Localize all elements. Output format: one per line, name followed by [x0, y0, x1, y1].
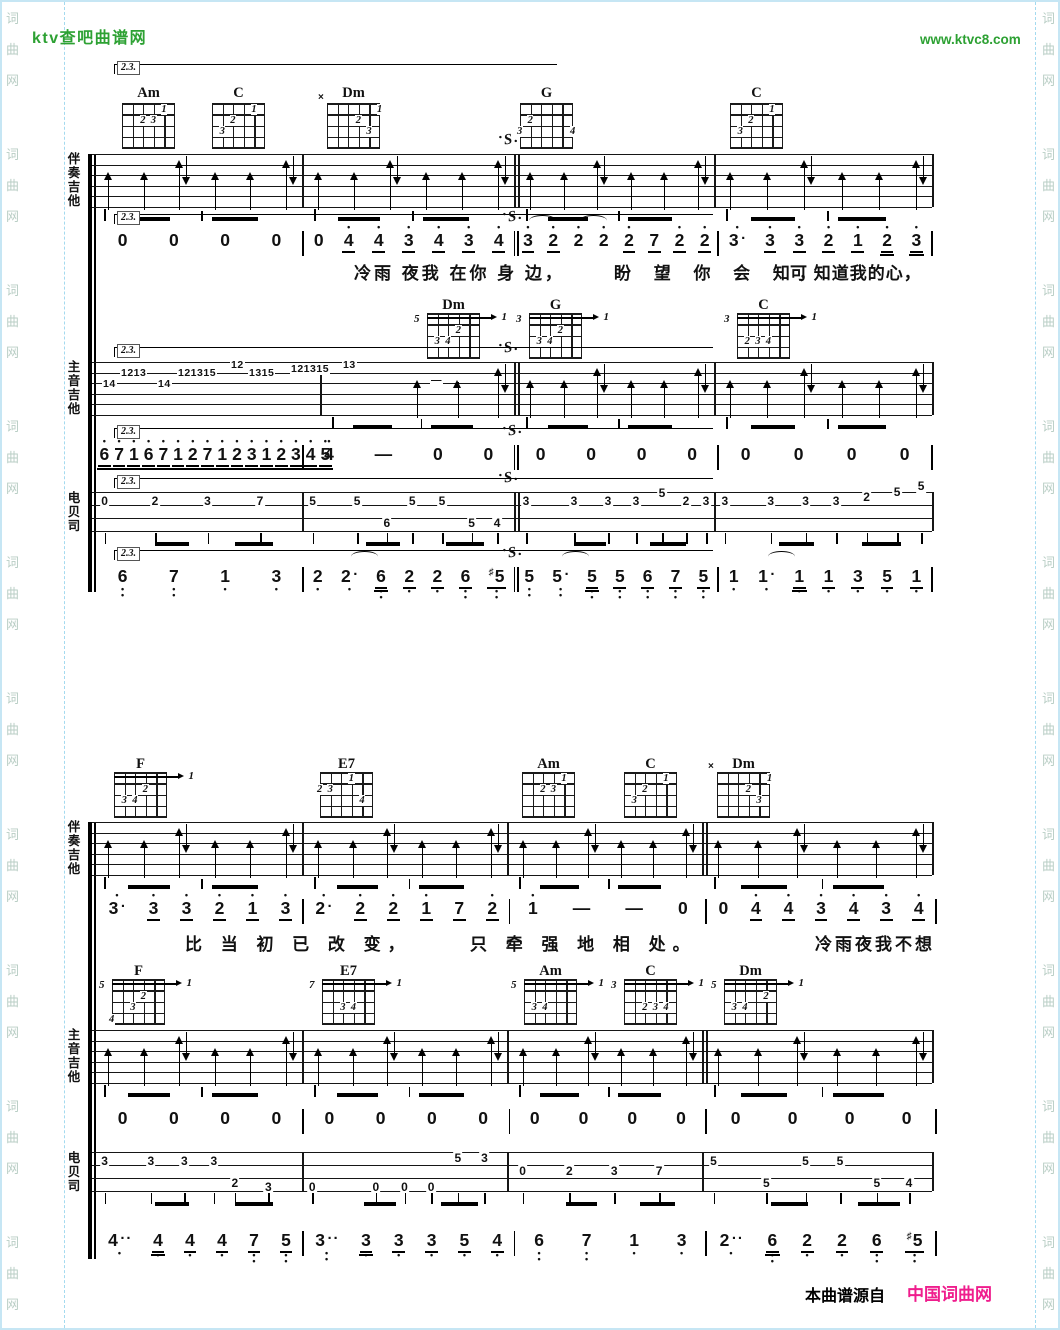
bass-tab-number: 3: [569, 494, 579, 508]
octave-dot-above: •: [107, 890, 127, 898]
octave-dot-above: [375, 558, 388, 566]
tab-number: 121315: [290, 363, 330, 375]
strum-down-arrow: [394, 1032, 395, 1059]
strum-up-arrow: [876, 1050, 877, 1086]
note-number: 0: [686, 444, 699, 465]
note-number: 2: [275, 444, 288, 467]
arrowhead: [494, 160, 502, 168]
watermark-char: 曲: [6, 311, 19, 330]
jianpu-note: •2: [485, 890, 500, 921]
site-url-link[interactable]: www.ktvc8.com: [920, 32, 1021, 47]
arrowhead: [314, 172, 322, 180]
watermark-char: 曲: [1042, 447, 1055, 466]
octave-dot-above: [482, 436, 495, 444]
strum-up-arrow: [144, 1050, 145, 1086]
beat-tick: [332, 417, 334, 429]
chord-barre-arrowhead: [588, 980, 594, 986]
strum-up-arrow: [250, 174, 251, 210]
jianpu-note: •7: [112, 436, 127, 467]
instrument-label-char: 司: [64, 1179, 84, 1193]
octave-dot-above: [312, 222, 325, 230]
bass-tab-number: 3: [264, 1180, 274, 1194]
chord-fret-line: [114, 772, 167, 774]
octave-dot-above: [107, 1222, 133, 1230]
chord-diagram-c: C123: [730, 103, 783, 149]
arrowhead: [422, 172, 430, 180]
octave-dot-above: [717, 890, 730, 898]
jianpu-note: 0: [676, 890, 691, 919]
arrowhead: [458, 172, 466, 180]
octave-dot-above: •: [815, 890, 828, 898]
octave-dot-below: •: [270, 587, 283, 593]
note-number: 2: [231, 444, 244, 467]
strum-up-arrow: [491, 830, 492, 878]
arrowhead: [838, 380, 846, 388]
note-number: 0: [786, 1108, 799, 1129]
tab-number: 13: [342, 359, 357, 371]
octave-dot-above: •: [157, 436, 170, 444]
arrowhead: [282, 1036, 290, 1044]
watermark-char: 曲: [6, 175, 19, 194]
octave-dot-below: •: [669, 595, 682, 601]
jianpu-note: •4: [371, 222, 386, 253]
jianpu-barline: [931, 231, 933, 256]
strum-up-arrow: [387, 830, 388, 878]
beat-tick: [822, 1087, 824, 1097]
note-number: 0: [270, 230, 283, 251]
watermark-char: 网: [1042, 206, 1055, 225]
jianpu-measure: 4··• 4• 4• 4• 7•• 5••: [97, 1222, 302, 1264]
octave-dot-below: •: [459, 595, 472, 601]
arrowhead: [501, 385, 509, 393]
note-number: 3: [522, 230, 535, 253]
melody-line-1: 0 0 0 0 0•4•4•3•4•3•4S•3•2•2•2•2 7•2•2•3…: [97, 222, 935, 256]
jianpu-note: •2: [353, 890, 368, 921]
lyrics-line: 比 当 初 已 改 变，: [185, 930, 412, 955]
bass-tab-number: 5: [308, 494, 318, 508]
instrument-label-char: 他: [64, 862, 84, 876]
chord-fret-line: [717, 816, 770, 817]
jianpu-note: 0: [527, 1100, 542, 1129]
arrowhead: [487, 1036, 495, 1044]
chord-fret-line: [320, 816, 373, 817]
watermark-char: 词: [6, 416, 19, 435]
arrowhead: [526, 380, 534, 388]
octave-dot-below: •: [851, 589, 864, 595]
strum-down-arrow: [293, 156, 294, 183]
watermark-char: 词: [6, 144, 19, 163]
barline: [302, 154, 304, 207]
augmentation-dot: ·: [121, 898, 127, 915]
arrowhead: [627, 172, 635, 180]
jianpu-note: 0: [269, 222, 284, 251]
beat-tick: [421, 419, 423, 429]
strum-up-arrow: [758, 842, 759, 878]
watermark-char: 网: [1042, 342, 1055, 361]
bass-tab-number: 4: [904, 1176, 914, 1190]
chord-name: E7: [322, 963, 375, 980]
beat-tick: [608, 879, 610, 889]
jianpu-measure: •1 — — 0: [510, 890, 705, 919]
octave-dot-above: [898, 436, 911, 444]
note-number: 2: [547, 230, 560, 253]
volta-bracket: 2.3.: [114, 478, 713, 488]
note-number: 0: [900, 1108, 913, 1129]
chord-barre-arrowhead: [788, 980, 794, 986]
bass-tab-number: 3: [801, 494, 811, 508]
strum-down-arrow: [705, 364, 706, 391]
octave-dot-above: [624, 890, 645, 898]
bass-stem: [526, 533, 528, 544]
note-number: 0: [168, 1108, 181, 1129]
chord-name: Dm: [724, 963, 777, 980]
strum-down-arrow: [811, 156, 812, 183]
double-barline: [518, 154, 520, 207]
note-number: —: [571, 898, 592, 919]
note-number: 0: [219, 230, 232, 251]
strum-down-arrow: [186, 824, 187, 851]
jianpu-note: 3•: [359, 1222, 374, 1262]
jianpu-note: 6••: [869, 1222, 884, 1264]
beat-tick: [519, 1085, 521, 1097]
bass-beam: [446, 542, 484, 546]
jianpu-barline: [935, 1109, 937, 1134]
bass-tab-number: 5: [407, 494, 417, 508]
beat-beam: [540, 885, 579, 889]
bass-tab-number: 5: [352, 494, 362, 508]
watermark-char: 网: [1042, 886, 1055, 905]
note-number: 0: [528, 1108, 541, 1129]
chord-finger-number: 4: [132, 795, 138, 806]
octave-dot-below: •: [533, 1257, 546, 1263]
bass-beam: [640, 1202, 675, 1206]
watermark-char: 网: [1042, 750, 1055, 769]
score-page: ktv查吧曲谱网 www.ktvc8.com 本曲谱源自 中国词曲网 词曲网词曲…: [0, 0, 1060, 1330]
staff-line: [92, 1178, 932, 1179]
arrowhead: [175, 160, 183, 168]
arrowhead: [754, 1048, 762, 1056]
octave-dot-above: [152, 1222, 165, 1230]
instrument-label-char: 吉: [64, 180, 84, 194]
jianpu-note: 0: [785, 1100, 800, 1129]
instrument-label-char: 贝: [64, 1165, 84, 1179]
octave-dot-above: •: [727, 222, 747, 230]
chord-fret-line: [624, 1013, 677, 1014]
octave-dot-below: •: [757, 587, 777, 593]
arrowhead: [912, 828, 920, 836]
bass-stem: [608, 533, 610, 544]
chord-fret-line: [520, 137, 573, 138]
octave-dot-above: [248, 1222, 261, 1230]
note-number: 0: [270, 1108, 283, 1129]
octave-dot-above: [905, 1222, 924, 1230]
chord-finger-number: 3: [731, 1002, 737, 1013]
bass-stem: [412, 533, 414, 544]
octave-dot-below: •: [168, 593, 181, 599]
bass-tab-number: 2: [681, 494, 691, 508]
jianpu-measure: 0 0 0 0: [97, 222, 302, 251]
arrowhead: [793, 1036, 801, 1044]
chord-fret-line: [717, 806, 770, 807]
chord-diagram-e7: E73471: [322, 979, 375, 1025]
chord-fret-line: [427, 357, 480, 358]
strum-down-arrow: [804, 1032, 805, 1059]
chord-fret-line: [529, 313, 582, 315]
strum-down-arrow: [293, 824, 294, 851]
chord-fret-line: [737, 357, 790, 358]
note-number: 0: [577, 1108, 590, 1129]
chord-finger-number: 4: [765, 336, 771, 347]
strum-up-arrow: [318, 842, 319, 878]
jianpu-note: 4··•: [106, 1222, 134, 1264]
watermark-char: 网: [6, 206, 19, 225]
jianpu-note: ♯5••: [904, 1222, 925, 1264]
strum-up-arrow: [797, 830, 798, 878]
jianpu-note: 5••: [279, 1222, 294, 1264]
strum-up-arrow: [498, 162, 499, 210]
jianpu-note: 0: [322, 1100, 337, 1129]
watermark-char: 曲: [6, 719, 19, 738]
jianpu-note: 4•: [490, 1222, 505, 1262]
watermark-char: 网: [6, 1294, 19, 1313]
arrowhead: [701, 177, 709, 185]
strum-up-arrow: [353, 1050, 354, 1086]
note-number: 3: [462, 230, 475, 253]
octave-dot-above: [323, 1100, 336, 1108]
octave-dot-above: [403, 558, 416, 566]
chord-barre-arrow: 1: [322, 983, 386, 985]
strum-up-arrow: [837, 1050, 838, 1086]
strum-up-arrow: [842, 382, 843, 418]
chord-barre-finger: 1: [187, 977, 193, 989]
bass-beam: [441, 1202, 478, 1206]
octave-dot-above: •: [216, 436, 229, 444]
jianpu-barline: [931, 567, 933, 592]
octave-dot-above: [528, 1100, 541, 1108]
octave-dot-above: •: [698, 222, 711, 230]
chord-finger-number: 1: [663, 773, 669, 784]
octave-dot-below: •: [431, 589, 444, 595]
note-number: 4: [847, 898, 860, 921]
arrowhead: [140, 172, 148, 180]
bass-tab-number: 5: [835, 1154, 845, 1168]
watermark-char: 词: [6, 824, 19, 843]
bass-beam: [771, 1202, 808, 1206]
strum-up-arrow: [387, 1038, 388, 1086]
arrowhead: [501, 177, 509, 185]
note-number: 3: [402, 230, 415, 253]
double-barline: [702, 1030, 704, 1083]
jianpu-note: 3•: [269, 558, 284, 598]
octave-dot-below: •: [551, 593, 571, 599]
octave-dot-below: •: [580, 1257, 593, 1263]
note-number: 4: [152, 1230, 165, 1253]
instrument-label-lead: 主音吉他: [64, 360, 84, 416]
jianpu-note: 0: [584, 436, 599, 465]
strum-up-arrow: [664, 174, 665, 210]
octave-dot-above: [677, 890, 690, 898]
jianpu-note: 5••: [612, 558, 627, 600]
lyrics-line: 可 知道我的心，: [790, 259, 922, 284]
chord-diagram-g: G234: [520, 103, 573, 149]
chord-barre-arrow: 1: [624, 983, 688, 985]
octave-dot-below: •: [910, 589, 923, 595]
arrowhead: [875, 380, 883, 388]
octave-dot-below: •: [458, 1253, 471, 1259]
barline: [932, 1030, 934, 1083]
bass-stem: [840, 1193, 842, 1204]
arrowhead: [175, 1036, 183, 1044]
jianpu-note: •2: [386, 890, 401, 921]
volta-bracket: 2.3.: [114, 347, 713, 357]
arrowhead: [552, 840, 560, 848]
chord-fret-line: [320, 806, 373, 807]
barline: [302, 1152, 304, 1191]
strum-up-arrow: [462, 174, 463, 210]
note-number: 7: [157, 444, 170, 467]
chord-finger-number: 3: [121, 795, 127, 806]
jianpu-note: 1•: [726, 558, 741, 595]
chord-barre-finger: 1: [799, 977, 805, 989]
jianpu-note: 1•: [821, 558, 836, 595]
chord-name: C: [624, 963, 677, 980]
arrowhead: [833, 840, 841, 848]
jianpu-note: 0: [167, 222, 182, 251]
octave-dot-below: •: [392, 1253, 405, 1259]
bass-beam: [235, 542, 273, 546]
watermark-char: 曲: [6, 39, 19, 58]
double-barline: [518, 492, 520, 531]
note-number: 4: [323, 444, 336, 465]
arrowhead: [211, 840, 219, 848]
arrowhead: [838, 172, 846, 180]
note-number: 0: [116, 1108, 129, 1129]
jianpu-barline: [935, 899, 937, 924]
note-number: 3: [360, 1230, 373, 1253]
watermark-char: 曲: [1042, 1263, 1055, 1282]
arrowhead: [349, 840, 357, 848]
note-number: 3: [290, 444, 303, 467]
octave-dot-above: [116, 558, 129, 566]
octave-dot-above: [453, 890, 466, 898]
arrowhead: [872, 840, 880, 848]
beat-beam: [128, 1093, 170, 1097]
jianpu-note: •3: [814, 890, 829, 921]
octave-dot-above: [801, 1222, 814, 1230]
bass-stem: [431, 1193, 433, 1204]
footer-source-label: 本曲谱源自: [805, 1282, 885, 1306]
jianpu-note: 7: [647, 222, 662, 253]
chord-finger-number: 3: [756, 795, 762, 806]
jianpu-note: —: [570, 890, 593, 919]
note-number: 3: [180, 898, 193, 921]
octave-dot-above: [718, 1222, 744, 1230]
jianpu-note: 1•: [909, 558, 924, 595]
octave-dot-below: •: [280, 1259, 293, 1265]
octave-dot-below: •: [248, 1259, 261, 1265]
instrument-label-char: 他: [64, 402, 84, 416]
strum-up-arrow: [686, 1038, 687, 1086]
strum-up-arrow: [523, 1050, 524, 1086]
augmentation-dot: ··: [120, 1230, 132, 1247]
bass-stem: [214, 1193, 216, 1204]
watermark-char: 词: [6, 280, 19, 299]
octave-dot-above: [851, 558, 864, 566]
chord-fret-line: [522, 816, 575, 817]
octave-dot-below: •: [822, 589, 835, 595]
jianpu-measure: 0 0 0 0: [515, 436, 717, 465]
instrument-label-char: 他: [64, 1070, 84, 1084]
arrowhead: [282, 828, 290, 836]
strum-up-arrow: [879, 382, 880, 418]
sharp-icon: ♯: [489, 567, 494, 578]
instrument-label-accomp: 伴奏吉他: [64, 152, 84, 208]
chord-finger-number: 2: [140, 991, 146, 1002]
watermark-char: 词: [1042, 1232, 1055, 1251]
bass-stem: [766, 1193, 768, 1204]
chord-fret-line: [524, 990, 577, 991]
jianpu-note: •2: [230, 436, 245, 467]
bass-beam: [862, 542, 901, 546]
note-number: 6: [98, 444, 111, 467]
chord-fret-line: [624, 783, 677, 784]
arrowhead: [875, 172, 883, 180]
chord-finger-number: 4: [359, 795, 365, 806]
chord-diagram-dm: Dm123×: [327, 103, 380, 149]
strum-down-arrow: [604, 156, 605, 183]
jianpu-note: 3•: [850, 558, 865, 595]
jianpu-note: 6••: [765, 1222, 780, 1264]
bass-stem: [105, 533, 107, 544]
jianpu-note: 0: [625, 1100, 640, 1129]
note-number: 3: [147, 898, 160, 921]
octave-dot-above: [729, 1100, 742, 1108]
octave-dot-above: •: [486, 890, 499, 898]
strum-up-arrow: [730, 174, 731, 210]
jianpu-note: 0: [167, 1100, 182, 1129]
note-number: 3: [910, 230, 923, 253]
bass-tab-number: 3: [203, 494, 213, 508]
strum-up-arrow: [250, 1050, 251, 1086]
beat-tick: [726, 209, 728, 221]
watermark-char: 词: [1042, 8, 1055, 27]
strum-up-arrow: [456, 1050, 457, 1086]
jianpu-measure: 5•• 5·•• 5•• 5•• 6•• 7•• 5••: [515, 558, 717, 600]
arrowhead: [104, 172, 112, 180]
strum-up-arrow: [621, 1050, 622, 1086]
jianpu-note: 4•: [215, 1222, 230, 1264]
chord-fret-line: [520, 147, 573, 148]
chord-diagram-e7: E71234: [320, 772, 373, 818]
note-number: 0: [677, 898, 690, 919]
footer-site-link[interactable]: 中国词曲网: [907, 1280, 992, 1305]
beat-tick: [519, 877, 521, 889]
arrowhead: [714, 840, 722, 848]
note-number: 2: [673, 230, 686, 253]
chord-finger-number: 1: [769, 104, 775, 115]
jianpu-note: 0: [373, 1100, 388, 1129]
chord-fret-line: [327, 147, 380, 148]
bass-tab-number: 3: [603, 494, 613, 508]
jianpu-note: 0: [716, 890, 731, 921]
arrowhead: [833, 1048, 841, 1056]
jianpu-note: 2•: [310, 558, 325, 600]
chord-diagram-c: C23431: [624, 979, 677, 1025]
jianpu-measure: •3•2•2•2•2 7•2•2: [515, 222, 717, 253]
strum-down-arrow: [923, 824, 924, 851]
beat-tick: [104, 1085, 106, 1097]
octave-dot-above: [459, 558, 472, 566]
